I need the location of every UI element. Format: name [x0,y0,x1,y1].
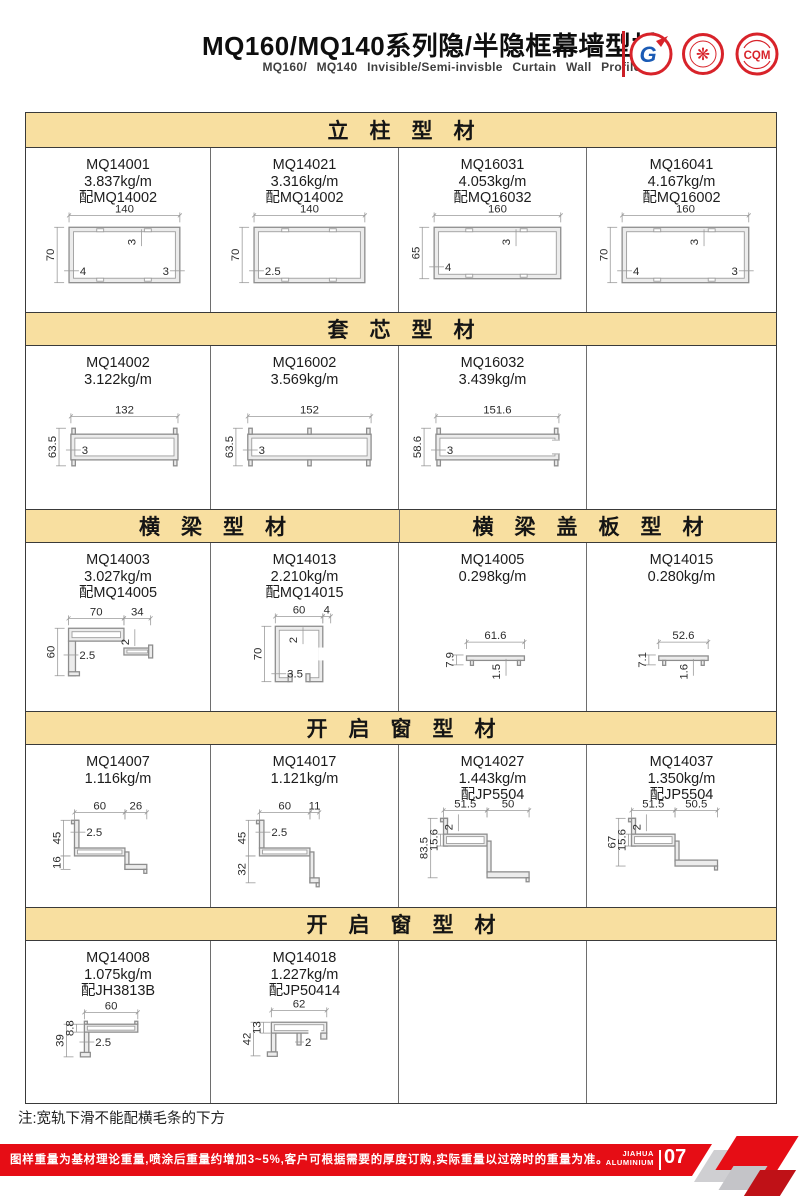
profile-model: MQ14017 [211,754,398,771]
profile-model: MQ16032 [399,355,586,372]
svg-text:50: 50 [502,798,515,810]
svg-text:62: 62 [293,998,306,1010]
profile-model: MQ14003 [26,552,210,569]
footer-disclaimer: 图样重量为基材理论重量,喷涂后重量约增加3~5%,客户可根据需要的厚度订购,实际… [10,1144,608,1176]
profile-model: MQ16002 [211,355,398,372]
profile-table: 立 柱 型 材MQ140013.837kg/m配MQ1400214070343M… [25,112,777,1104]
svg-text:2.5: 2.5 [265,266,281,278]
profile-weight: 0.280kg/m [587,569,776,586]
profile-cell: MQ140181.227kg/m配JP504146242132 [211,941,399,1103]
empty-cell [587,941,776,1103]
svg-text:60: 60 [46,646,58,659]
profile-drawing: 6047023.5 [212,596,395,708]
profile-model: MQ14007 [26,754,210,771]
svg-text:4: 4 [80,266,86,278]
empty-cell [399,941,587,1103]
svg-text:52.6: 52.6 [672,630,694,642]
profile-cell: MQ140033.027kg/m配MQ1400570346022.5 [26,543,211,711]
svg-text:45: 45 [237,832,249,845]
brand-divider [659,1150,661,1170]
profile-model: MQ14021 [211,157,398,174]
section-title: 开 启 窗 型 材 [26,711,776,745]
svg-text:160: 160 [676,203,695,215]
profile-drawing: 60398.82.5 [27,988,210,1100]
svg-text:8.8: 8.8 [64,1020,76,1036]
svg-text:2: 2 [288,637,300,643]
profile-drawing: 1606534 [400,197,583,309]
profile-cell: MQ140023.122kg/m13263.53 [26,346,211,509]
svg-text:4: 4 [633,266,639,278]
svg-text:3.5: 3.5 [287,669,303,681]
svg-text:G: G [639,42,656,67]
svg-text:61.6: 61.6 [484,630,506,642]
profile-drawing: 601145322.5 [212,792,395,904]
profile-cell: MQ140071.116kg/m602645162.5 [26,745,211,907]
profile-weight: 3.837kg/m [26,174,210,191]
svg-text:2.5: 2.5 [86,827,102,839]
profile-model: MQ14015 [587,552,776,569]
svg-text:3: 3 [259,445,265,457]
svg-text:4: 4 [445,262,451,274]
profile-model: MQ14027 [399,754,586,771]
svg-text:70: 70 [90,606,103,618]
profile-drawing: 13263.53 [27,394,210,506]
svg-text:16: 16 [52,856,64,869]
svg-text:70: 70 [230,249,242,262]
brand-line2: ALUMINIUM [596,1158,654,1167]
section-title: 开 启 窗 型 材 [26,907,776,941]
svg-text:63.5: 63.5 [47,436,59,458]
profile-model: MQ14001 [26,157,210,174]
svg-text:13: 13 [251,1021,263,1034]
profile-drawing: 16070343 [588,197,771,309]
svg-text:3: 3 [82,445,88,457]
profile-cell: MQ140213.316kg/m配MQ14002140702.5 [211,148,399,312]
profile-weight: 4.167kg/m [587,174,776,191]
profile-drawing: 51.55083.515.62 [400,792,583,904]
svg-text:58.6: 58.6 [412,436,424,458]
svg-text:2.5: 2.5 [79,650,95,662]
profile-model: MQ16041 [587,157,776,174]
footer-brand: JIAHUA ALUMINIUM [596,1149,654,1167]
decor-red-shape [715,1136,798,1170]
profile-cell: MQ140132.210kg/m配MQ140156047023.5 [211,543,399,711]
profile-cell: MQ140150.280kg/m52.67.11.6 [587,543,776,711]
svg-text:60: 60 [278,800,291,812]
profile-model: MQ16031 [399,157,586,174]
certification-logos: G ❋ CQM [628,31,782,77]
svg-text:152: 152 [300,404,319,416]
svg-text:❋: ❋ [696,45,710,64]
svg-text:63.5: 63.5 [224,436,236,458]
profile-cell: MQ140081.075kg/m配JH3813B60398.82.5 [26,941,211,1103]
profile-drawing: 140702.5 [212,197,395,309]
catalog-page: MQ160/MQ140系列隐/半隐框幕墙型材 MQ160/ MQ140 Invi… [0,0,800,1200]
svg-text:15.6: 15.6 [429,829,441,851]
svg-text:32: 32 [237,863,249,876]
svg-text:60: 60 [93,800,106,812]
svg-text:2: 2 [305,1037,311,1049]
profile-cell: MQ140371.350kg/m配JP550451.550.56715.62 [587,745,776,907]
svg-text:132: 132 [115,404,134,416]
svg-text:70: 70 [45,249,57,262]
profile-drawing: 14070343 [27,197,210,309]
profile-weight: 2.210kg/m [211,569,398,586]
section-title: 横 梁 型 材 [26,509,399,543]
svg-text:7.1: 7.1 [637,652,649,668]
svg-text:7.9: 7.9 [445,652,457,668]
header-red-divider [622,31,625,77]
svg-text:51.5: 51.5 [454,798,476,810]
profile-weight: 3.027kg/m [26,569,210,586]
profile-weight: 1.350kg/m [587,771,776,788]
profile-drawing: 151.658.63 [400,394,583,506]
profile-drawing: 51.550.56715.62 [588,792,771,904]
svg-text:15.6: 15.6 [617,829,629,851]
svg-text:60: 60 [293,604,306,616]
profile-weight: 1.121kg/m [211,771,398,788]
profile-cell: MQ160314.053kg/m配MQ160321606534 [399,148,587,312]
page-number: 07 [664,1146,686,1169]
svg-text:3: 3 [732,266,738,278]
profile-weight: 1.075kg/m [26,967,210,984]
profile-cell: MQ140271.443kg/m配JP550451.55083.515.62 [399,745,587,907]
profile-weight: 3.439kg/m [399,372,586,389]
svg-text:2: 2 [631,824,643,830]
svg-text:140: 140 [115,203,134,215]
svg-text:60: 60 [105,1000,118,1012]
profile-model: MQ14002 [26,355,210,372]
footnote: 注:宽轨下滑不能配横毛条的下方 [18,1107,225,1128]
profile-cell: MQ140171.121kg/m601145322.5 [211,745,399,907]
svg-text:2: 2 [443,824,455,830]
profile-model: MQ14008 [26,950,210,967]
brand-line1: JIAHUA [596,1149,654,1158]
svg-text:70: 70 [598,249,610,262]
empty-cell [587,346,776,509]
svg-text:1.5: 1.5 [491,664,503,680]
svg-text:4: 4 [324,604,330,616]
svg-text:45: 45 [52,832,64,845]
profile-drawing: 61.67.91.5 [400,596,583,708]
svg-text:26: 26 [130,800,143,812]
profile-drawing: 15263.53 [212,394,395,506]
profile-drawing: 6242132 [212,988,395,1100]
profile-weight: 1.227kg/m [211,967,398,984]
svg-text:3: 3 [127,239,139,245]
profile-weight: 4.053kg/m [399,174,586,191]
profile-cell: MQ160414.167kg/m配MQ1600216070343 [587,148,776,312]
svg-text:65: 65 [410,247,422,260]
cqm-text: CQM [744,50,771,62]
gb-cert-logo: G [631,34,671,74]
svg-text:70: 70 [252,648,264,661]
svg-text:11: 11 [309,800,321,812]
profile-model: MQ14005 [399,552,586,569]
svg-text:34: 34 [131,606,144,618]
seal-cert-logo: ❋ [684,35,723,74]
profile-cell: MQ140013.837kg/m配MQ1400214070343 [26,148,211,312]
svg-text:3: 3 [447,445,453,457]
profile-weight: 3.316kg/m [211,174,398,191]
profile-weight: 3.122kg/m [26,372,210,389]
svg-text:3: 3 [163,266,169,278]
svg-text:3: 3 [689,239,701,245]
profile-weight: 3.569kg/m [211,372,398,389]
svg-text:3: 3 [501,239,513,245]
cqm-cert-logo: CQM [737,34,777,74]
profile-weight: 1.116kg/m [26,771,210,788]
profile-model: MQ14037 [587,754,776,771]
svg-text:151.6: 151.6 [483,404,511,416]
profile-cell: MQ160323.439kg/m151.658.63 [399,346,587,509]
svg-text:2: 2 [120,639,132,645]
section-title: 立 柱 型 材 [26,113,776,148]
profile-cell: MQ140050.298kg/m61.67.91.5 [399,543,587,711]
svg-text:2.5: 2.5 [95,1037,111,1049]
profile-drawing: 70346022.5 [27,596,210,708]
profile-drawing: 52.67.11.6 [588,596,771,708]
profile-model: MQ14018 [211,950,398,967]
svg-text:140: 140 [300,203,319,215]
profile-drawing: 602645162.5 [27,792,210,904]
svg-text:1.6: 1.6 [678,664,690,680]
profile-cell: MQ160023.569kg/m15263.53 [211,346,399,509]
section-title: 横 梁 盖 板 型 材 [399,509,776,543]
svg-text:51.5: 51.5 [642,798,664,810]
svg-text:2.5: 2.5 [271,827,287,839]
svg-text:160: 160 [488,203,507,215]
profile-model: MQ14013 [211,552,398,569]
svg-text:50.5: 50.5 [685,798,707,810]
section-title: 套 芯 型 材 [26,312,776,346]
profile-weight: 0.298kg/m [399,569,586,586]
profile-weight: 1.443kg/m [399,771,586,788]
